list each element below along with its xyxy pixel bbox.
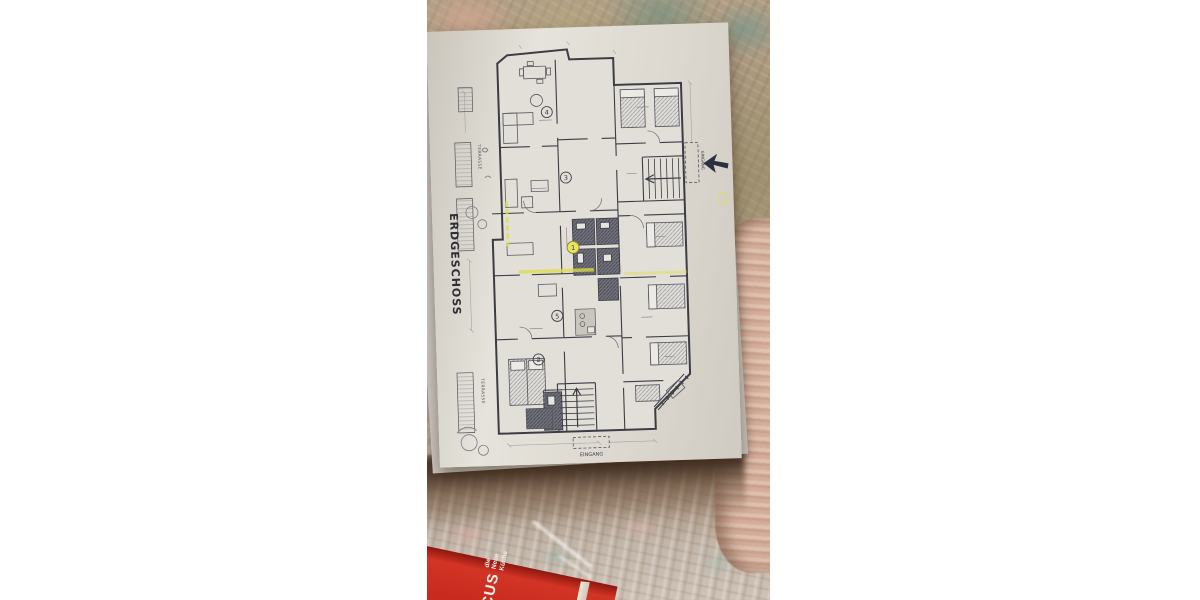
- svg-text:2: 2: [536, 356, 540, 364]
- entrance-arrow-icon: [703, 153, 729, 173]
- floor-plan-drawing: EINGANG EINGANG TERRASSE TERRASSE: [427, 22, 742, 467]
- svg-text:4: 4: [545, 109, 549, 117]
- book-page-edge: [556, 581, 590, 600]
- svg-text:1: 1: [571, 244, 575, 252]
- entrance-arrow: EINGANG: [700, 150, 729, 173]
- terrace-label-2: TERRASSE: [480, 377, 486, 404]
- svg-text:5: 5: [555, 312, 559, 320]
- screenshot: EINGANG EINGANG TERRASSE TERRASSE: [0, 0, 1200, 600]
- svg-text:3: 3: [564, 174, 568, 182]
- entrance-arrow-label: EINGANG: [700, 151, 706, 170]
- terrace-label-1: TERRASSE: [477, 143, 483, 170]
- entrance-label: EINGANG: [580, 451, 604, 458]
- plan-title: ERDGESCHOSS: [447, 213, 463, 316]
- book-spine: FOCUS die Neue Küche: [459, 560, 518, 600]
- unit-badge-1-highlighted: 1: [567, 241, 579, 253]
- kitchen: [575, 309, 596, 336]
- floor-plan-paper: EINGANG EINGANG TERRASSE TERRASSE: [427, 22, 742, 467]
- photo-of-floor-plan: EINGANG EINGANG TERRASSE TERRASSE: [427, 0, 770, 600]
- book-spine-title: FOCUS: [474, 572, 501, 600]
